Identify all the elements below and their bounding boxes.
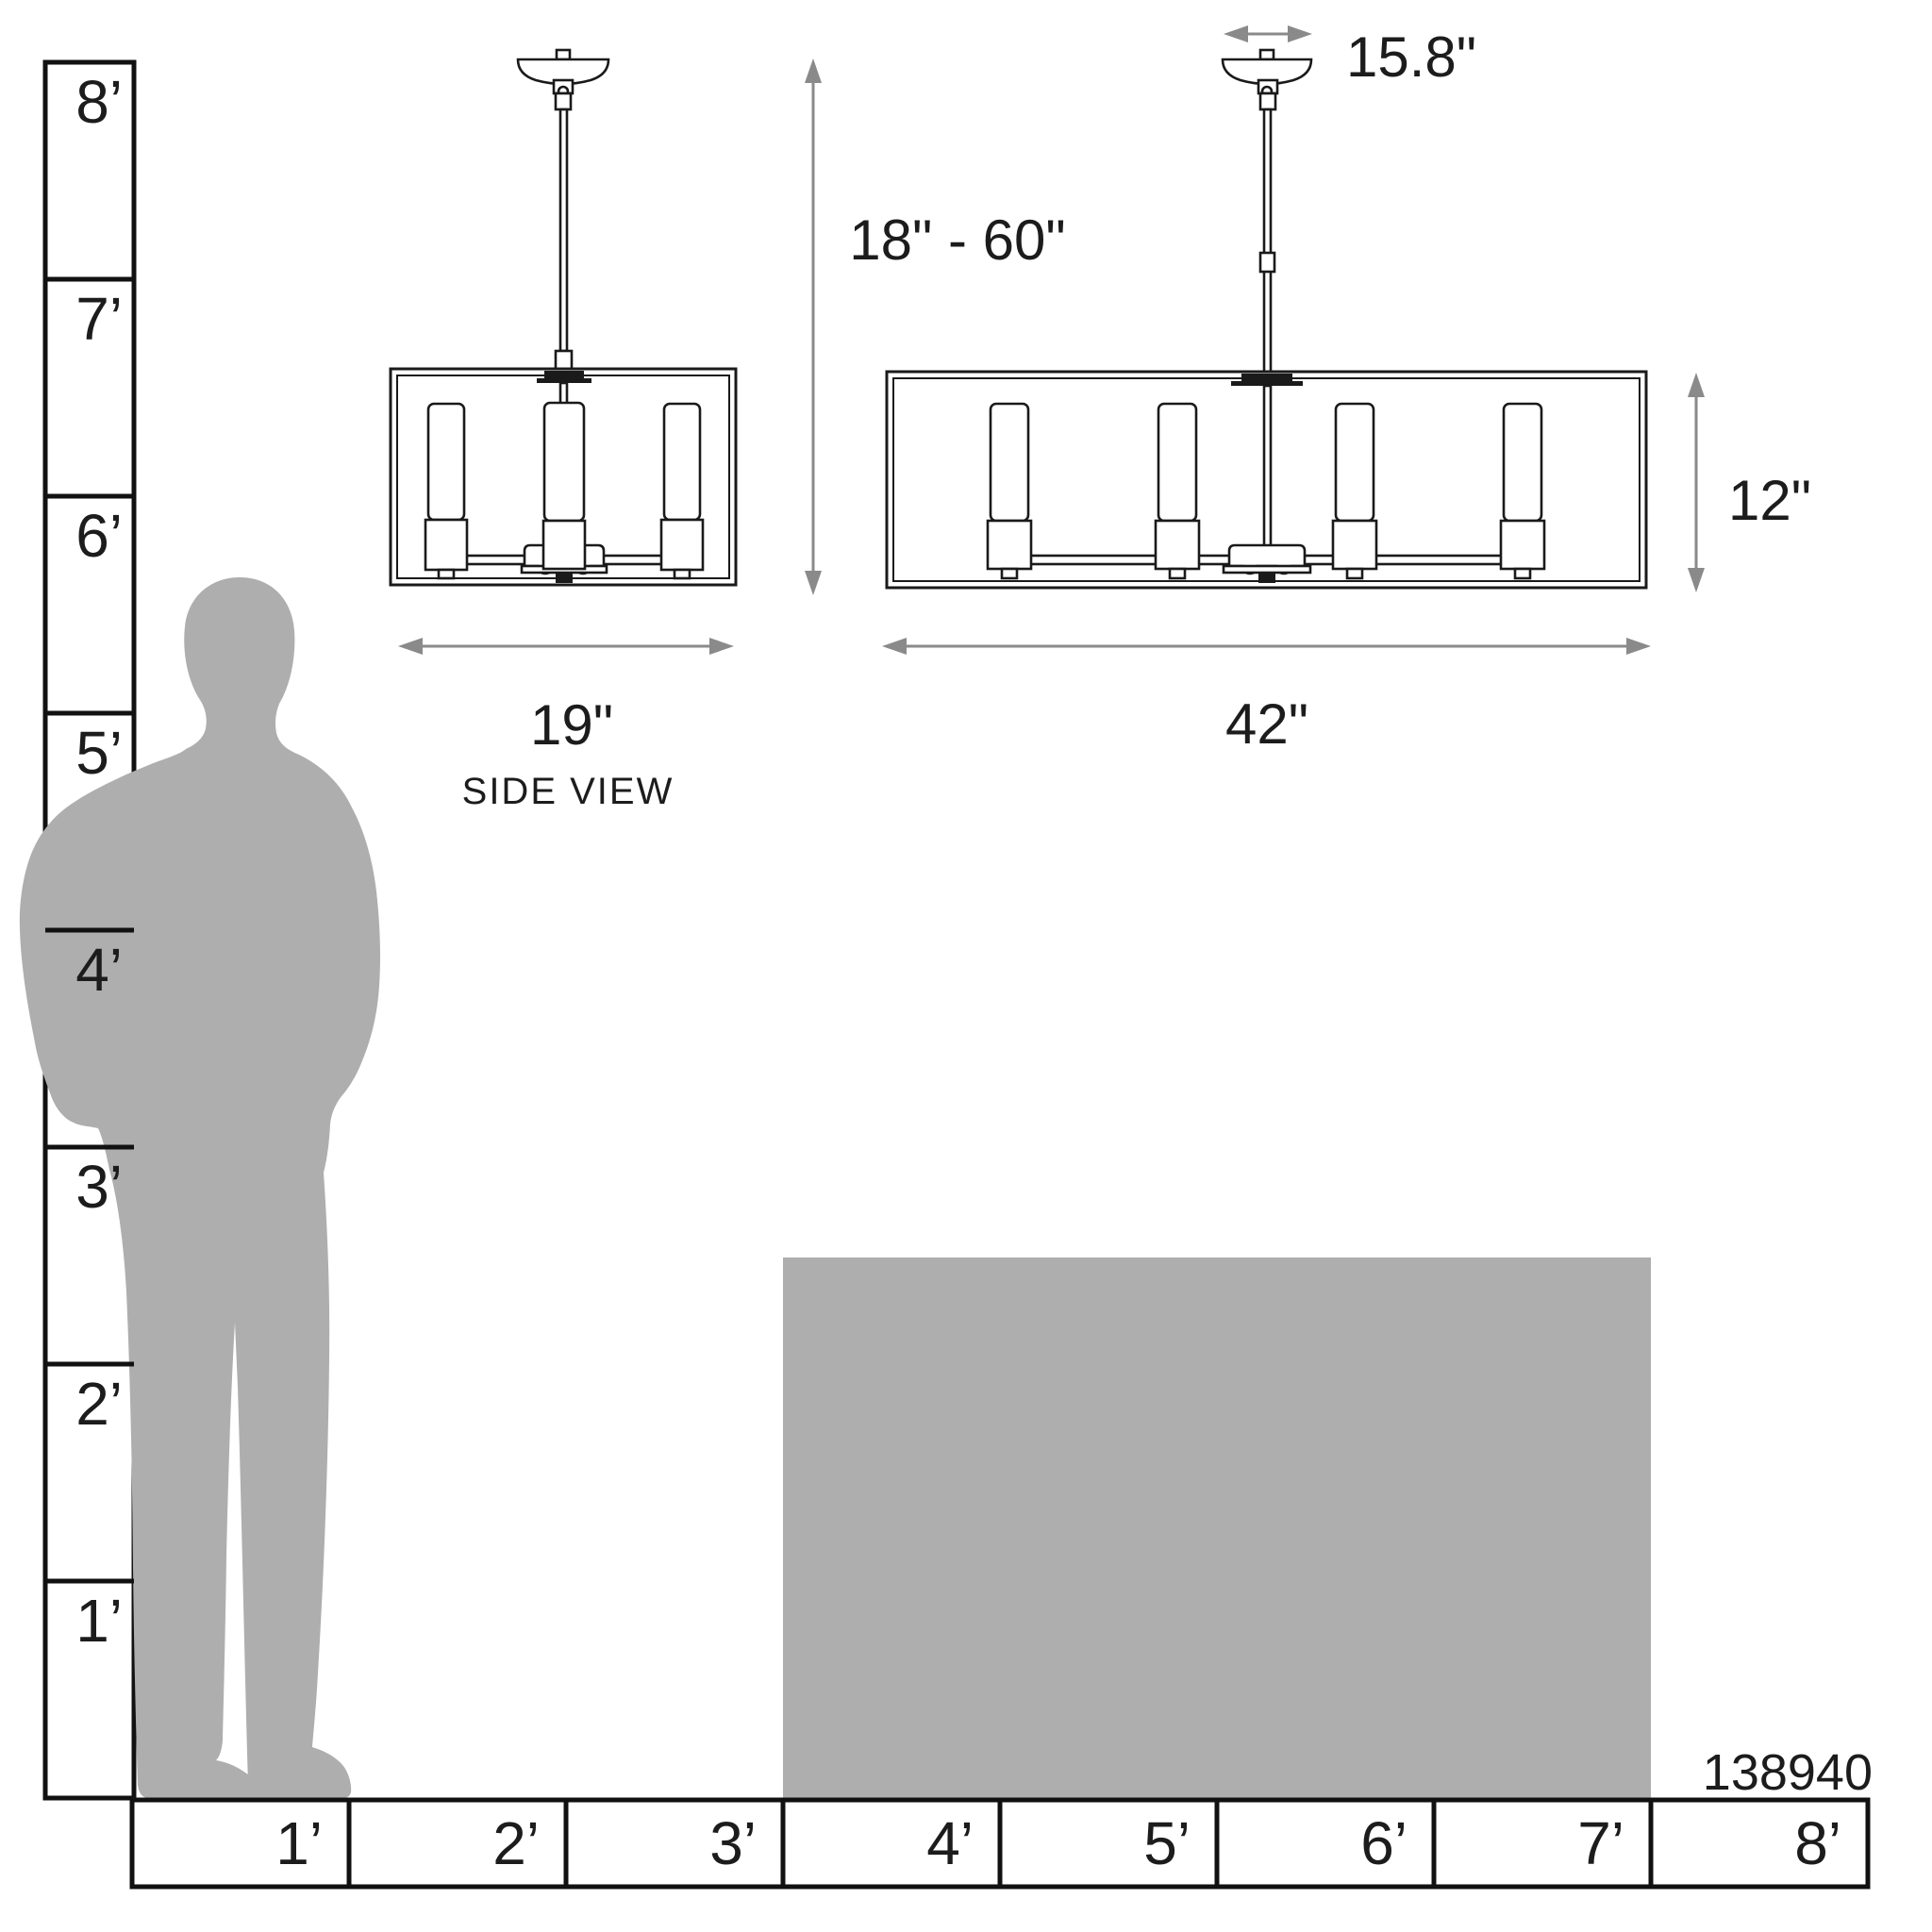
product-code: 138940: [1703, 1744, 1873, 1801]
left-ruler-label-1ft: 1’: [75, 1587, 123, 1655]
front-canopy-finial: [1260, 50, 1274, 59]
dimension-diagram: 8’ 7’ 6’ 5’ 4’ 3’ 2’ 1’ 1’ 2’ 3’ 4’ 5’ 6…: [0, 0, 1932, 1932]
left-ruler-label-3ft: 3’: [75, 1153, 123, 1221]
left-ruler-label-8ft: 8’: [75, 68, 123, 136]
hang-height-arrow: [805, 58, 822, 595]
front-width-label: 42": [1225, 692, 1308, 756]
left-ruler-label-2ft: 2’: [75, 1370, 123, 1438]
left-ruler-label-7ft: 7’: [75, 285, 123, 353]
left-ruler-label-6ft: 6’: [75, 502, 123, 570]
front-width-arrow: [882, 638, 1651, 655]
front-candle-4: [1501, 404, 1544, 578]
side-downrod: [560, 109, 567, 351]
bottom-ruler-label-2ft: 2’: [492, 1809, 540, 1877]
front-candle-1: [988, 404, 1031, 578]
left-ruler-label-5ft: 5’: [75, 719, 123, 787]
shade-height-arrow: [1688, 373, 1705, 592]
front-candle-3: [1333, 404, 1376, 578]
bottom-ruler-label-3ft: 3’: [709, 1809, 757, 1877]
bottom-ruler-label-8ft: 8’: [1794, 1809, 1841, 1877]
bottom-ruler-label-4ft: 4’: [926, 1809, 974, 1877]
front-downrod: [1264, 109, 1271, 372]
front-view-fixture: [887, 50, 1646, 588]
side-candle-right: [661, 404, 703, 578]
canopy-width-label: 15.8": [1346, 25, 1476, 89]
hang-height-label: 18" - 60": [849, 208, 1065, 272]
side-candle-left: [425, 404, 467, 578]
kitchen-island: [783, 1257, 1651, 1800]
left-height-ruler-marks: 8’ 7’ 6’ 5’ 4’ 3’ 2’ 1’: [45, 62, 134, 1798]
side-width-label: 19": [530, 693, 613, 757]
side-view-fixture: [391, 50, 736, 585]
shade-height-label: 12": [1728, 469, 1811, 532]
bottom-ruler-label-1ft: 1’: [275, 1809, 323, 1877]
canopy-width-arrow: [1224, 25, 1312, 42]
bottom-ruler-label-5ft: 5’: [1143, 1809, 1191, 1877]
person-silhouette: [20, 577, 380, 1798]
left-ruler-label-4ft: 4’: [75, 936, 123, 1004]
bottom-ruler-label-7ft: 7’: [1577, 1809, 1624, 1877]
side-canopy-finial: [557, 50, 570, 59]
front-candle-2: [1156, 404, 1199, 578]
dimension-diagram-page: 8’ 7’ 6’ 5’ 4’ 3’ 2’ 1’ 1’ 2’ 3’ 4’ 5’ 6…: [0, 0, 1932, 1932]
bottom-width-ruler: 1’ 2’ 3’ 4’ 5’ 6’ 7’ 8’: [132, 1800, 1868, 1887]
side-width-arrow: [398, 638, 734, 655]
side-candle-center: [543, 403, 585, 569]
bottom-ruler-label-6ft: 6’: [1360, 1809, 1407, 1877]
side-view-caption: SIDE VIEW: [462, 771, 675, 812]
